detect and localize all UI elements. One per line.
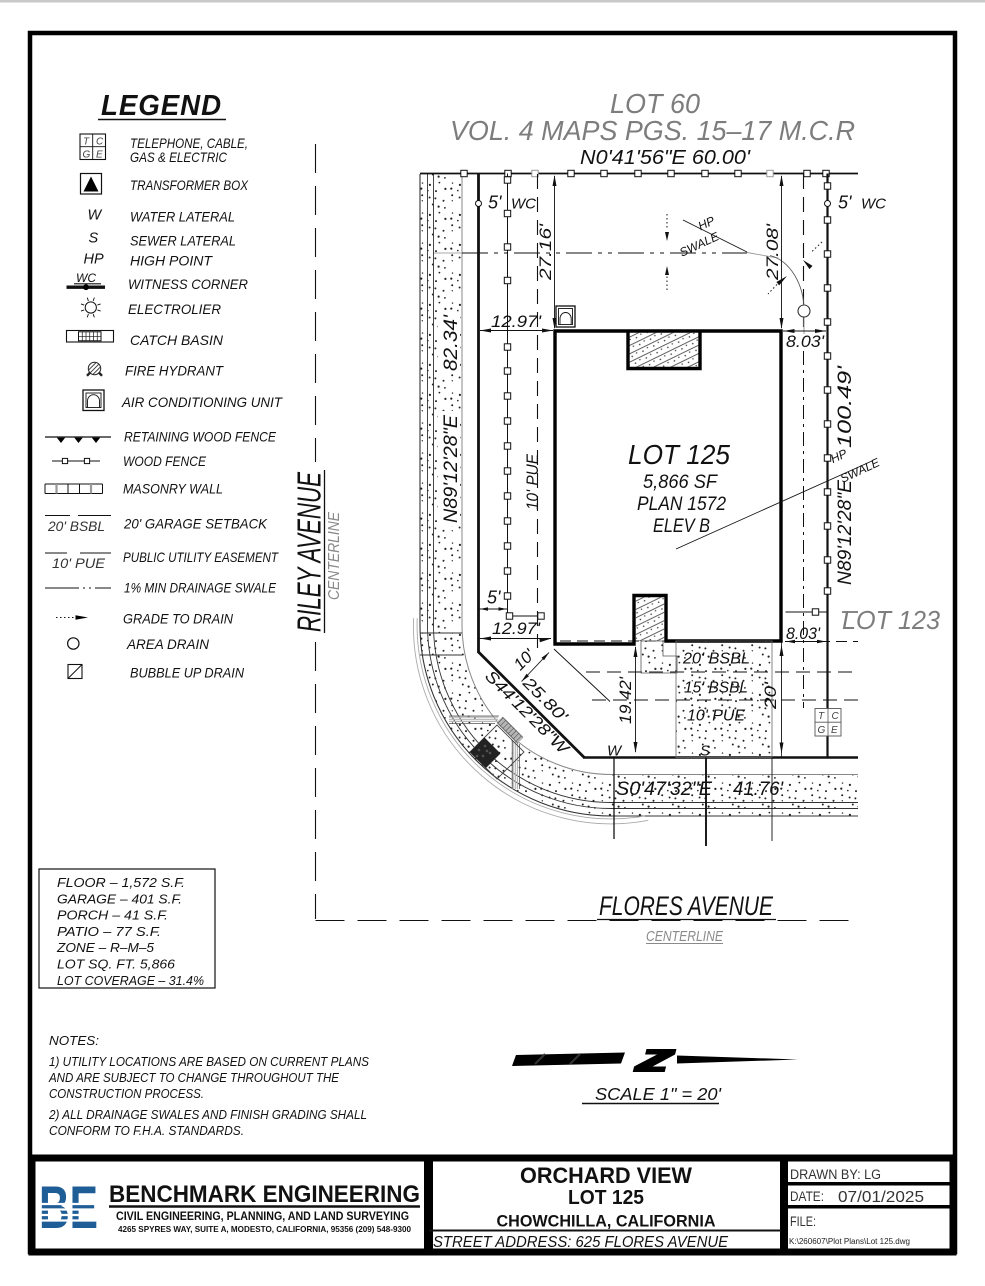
- svg-text:PATIO – 77 S.F.: PATIO – 77 S.F.: [57, 924, 161, 939]
- svg-text:LOT 123: LOT 123: [842, 605, 941, 635]
- svg-text:CENTERLINE: CENTERLINE: [646, 928, 724, 945]
- svg-text:AIR CONDITIONING UNIT: AIR CONDITIONING UNIT: [121, 394, 283, 410]
- svg-text:07/01/2025: 07/01/2025: [838, 1189, 924, 1206]
- svg-text:LOT COVERAGE – 31.4%: LOT COVERAGE – 31.4%: [57, 973, 204, 988]
- svg-text:N89'12'28"E: N89'12'28"E: [835, 480, 856, 585]
- svg-text:BE: BE: [39, 1174, 98, 1241]
- svg-text:NOTES:: NOTES:: [49, 1033, 99, 1048]
- svg-text:LOT 125: LOT 125: [568, 1187, 644, 1209]
- svg-text:BENCHMARK ENGINEERING: BENCHMARK ENGINEERING: [109, 1181, 420, 1208]
- svg-text:C: C: [832, 711, 840, 722]
- svg-text:12.97': 12.97': [491, 312, 542, 331]
- svg-text:ORCHARD VIEW: ORCHARD VIEW: [520, 1163, 692, 1188]
- svg-text:CATCH BASIN: CATCH BASIN: [130, 332, 224, 348]
- svg-text:20' BSBL: 20' BSBL: [682, 651, 750, 668]
- svg-text:FILE:: FILE:: [790, 1214, 816, 1229]
- svg-text:CHOWCHILLA, CALIFORNIA: CHOWCHILLA, CALIFORNIA: [497, 1212, 716, 1231]
- svg-text:ELEV B: ELEV B: [653, 515, 710, 537]
- svg-text:CONFORM TO F.H.A. STANDARDS.: CONFORM TO F.H.A. STANDARDS.: [49, 1124, 244, 1138]
- svg-text:FIRE HYDRANT: FIRE HYDRANT: [125, 363, 224, 379]
- svg-text:WOOD FENCE: WOOD FENCE: [123, 453, 207, 469]
- svg-text:WC: WC: [511, 196, 536, 213]
- svg-text:WC: WC: [76, 271, 96, 285]
- svg-text:WITNESS CORNER: WITNESS CORNER: [128, 276, 248, 292]
- svg-text:GRADE TO DRAIN: GRADE TO DRAIN: [123, 611, 234, 627]
- svg-text:20' BSBL: 20' BSBL: [47, 518, 105, 534]
- svg-text:20': 20': [762, 681, 780, 710]
- svg-text:8.03': 8.03': [786, 333, 825, 351]
- svg-text:CONSTRUCTION PROCESS.: CONSTRUCTION PROCESS.: [49, 1087, 204, 1101]
- svg-text:C: C: [96, 137, 104, 148]
- svg-text:DRAWN BY: LG: DRAWN BY: LG: [790, 1167, 881, 1182]
- svg-text:BUBBLE UP DRAIN: BUBBLE UP DRAIN: [130, 665, 245, 681]
- svg-text:5,866 SF: 5,866 SF: [643, 471, 718, 493]
- svg-text:RILEY AVENUE: RILEY AVENUE: [291, 471, 328, 632]
- svg-text:PUBLIC UTILITY EASEMENT: PUBLIC UTILITY EASEMENT: [123, 549, 279, 565]
- svg-text:FLORES AVENUE: FLORES AVENUE: [599, 891, 774, 921]
- svg-text:LOT 125: LOT 125: [628, 439, 730, 470]
- svg-text:5': 5': [487, 588, 501, 608]
- svg-text:PLAN 1572: PLAN 1572: [637, 493, 726, 515]
- svg-text:STREET ADDRESS: 625 FLORE: STREET ADDRESS: 625 FLORES AVENUE: [433, 1234, 728, 1251]
- svg-text:5': 5': [838, 193, 852, 213]
- svg-text:G: G: [83, 150, 91, 161]
- svg-text:1) UTILITY LOCATIONS ARE BASED: 1) UTILITY LOCATIONS ARE BASED ON CURREN…: [49, 1055, 370, 1069]
- svg-text:SEWER LATERAL: SEWER LATERAL: [130, 233, 236, 249]
- svg-text:15' BSBL: 15' BSBL: [684, 680, 748, 697]
- svg-text:K:\260607\Plot Plans\Lot 125.d: K:\260607\Plot Plans\Lot 125.dwg: [789, 1237, 910, 1246]
- svg-text:10' PUE: 10' PUE: [687, 708, 745, 725]
- svg-text:E: E: [96, 150, 103, 161]
- svg-text:DATE:: DATE:: [790, 1189, 824, 1204]
- svg-text:LEGEND: LEGEND: [101, 90, 222, 122]
- svg-text:27.08': 27.08': [763, 223, 782, 281]
- svg-text:N89'12'28"E: N89'12'28"E: [441, 415, 462, 523]
- svg-text:ZONE – R–M–5: ZONE – R–M–5: [56, 940, 155, 955]
- svg-text:WATER LATERAL: WATER LATERAL: [130, 209, 235, 225]
- svg-text:41.76': 41.76': [733, 779, 784, 800]
- svg-text:HIGH POINT: HIGH POINT: [130, 253, 213, 269]
- svg-text:T: T: [83, 137, 90, 148]
- svg-text:PORCH – 41 S.F.: PORCH – 41 S.F.: [57, 908, 168, 923]
- svg-text:W: W: [88, 208, 103, 224]
- svg-text:S0'47'32"E: S0'47'32"E: [616, 779, 712, 800]
- svg-text:HP: HP: [84, 252, 104, 268]
- svg-text:T: T: [818, 711, 825, 722]
- svg-text:MASONRY WALL: MASONRY WALL: [123, 481, 223, 497]
- svg-text:12.97': 12.97': [492, 619, 541, 638]
- svg-text:LOT SQ. FT. 5,866: LOT SQ. FT. 5,866: [57, 957, 176, 972]
- svg-text:CENTERLINE: CENTERLINE: [326, 512, 343, 600]
- svg-text:27.16': 27.16': [536, 223, 555, 281]
- svg-text:TRANSFORMER BOX: TRANSFORMER BOX: [130, 177, 249, 193]
- svg-text:8.03': 8.03': [786, 625, 821, 643]
- svg-text:ELECTROLIER: ELECTROLIER: [128, 301, 221, 317]
- svg-text:10' PUE: 10' PUE: [52, 555, 106, 571]
- svg-text:20' GARAGE SETBACK: 20' GARAGE SETBACK: [123, 516, 268, 532]
- svg-text:S: S: [700, 743, 710, 760]
- svg-text:G: G: [818, 725, 826, 736]
- svg-text:AND ARE SUBJECT TO CHANGE THRO: AND ARE SUBJECT TO CHANGE THROUGHOUT THE: [48, 1071, 340, 1085]
- svg-text:AREA DRAIN: AREA DRAIN: [126, 636, 210, 652]
- svg-text:82.34': 82.34': [441, 314, 462, 371]
- svg-text:2) ALL DRAINAGE SWALES AND FIN: 2) ALL DRAINAGE SWALES AND FINISH GRADIN…: [48, 1108, 367, 1122]
- svg-text:1% MIN DRAINAGE SWALE: 1% MIN DRAINAGE SWALE: [124, 580, 277, 596]
- svg-text:VOL. 4 MAPS PGS. 15–17 M.: VOL. 4 MAPS PGS. 15–17 M.C.R: [450, 115, 855, 146]
- svg-text:SCALE 1" = 20': SCALE 1" = 20': [595, 1084, 722, 1104]
- svg-text:100.49': 100.49': [835, 364, 856, 448]
- svg-text:GARAGE – 401 S.F.: GARAGE – 401 S.F.: [57, 891, 182, 906]
- svg-text:GAS & ELECTRIC: GAS & ELECTRIC: [130, 149, 228, 165]
- svg-text:E: E: [831, 725, 838, 736]
- svg-text:CIVIL ENGINEERING, PLANNING, A: CIVIL ENGINEERING, PLANNING, AND LAND SU…: [116, 1211, 409, 1223]
- svg-text:N0'41'56"E 60.00': N0'41'56"E 60.00': [580, 147, 751, 169]
- svg-text:10' PUE: 10' PUE: [523, 453, 542, 510]
- svg-text:RETAINING WOOD FENCE: RETAINING WOOD FENCE: [124, 429, 277, 445]
- svg-text:S: S: [89, 231, 99, 247]
- svg-text:4265 SPYRES WAY, SUITE A, MODE: 4265 SPYRES WAY, SUITE A, MODESTO, CALIF…: [118, 1224, 411, 1234]
- svg-text:W: W: [607, 743, 623, 760]
- svg-text:5': 5': [488, 193, 502, 213]
- svg-text:FLOOR – 1,572 S.F.: FLOOR – 1,572 S.F.: [57, 875, 185, 890]
- svg-text:19.42': 19.42': [617, 676, 635, 724]
- svg-text:WC: WC: [861, 196, 886, 213]
